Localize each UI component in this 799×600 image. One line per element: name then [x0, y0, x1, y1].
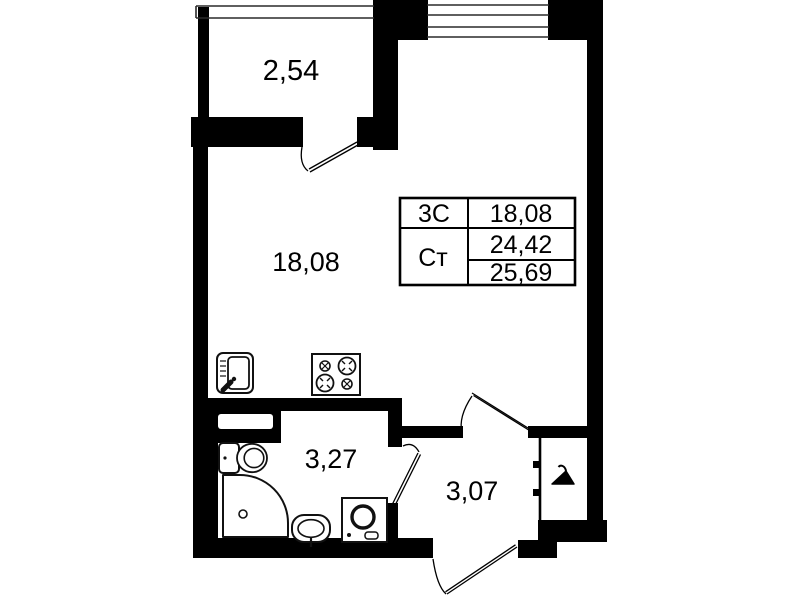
wall-bathroom-right-upper [388, 398, 402, 447]
kitchen-sink-icon [217, 353, 253, 393]
entry-door [433, 545, 517, 594]
wall-hall-top-left [388, 426, 463, 438]
floor-plan: 3С 18,08 Ст 24,42 25,69 2,54 18,08 3,27 … [0, 0, 799, 600]
wall-wardrobe-bottom [538, 520, 607, 542]
balcony-door-arc [301, 147, 308, 171]
living-room-window [427, 5, 549, 37]
washing-machine-icon [342, 498, 387, 542]
table-cell-type-2: Ст [418, 244, 448, 272]
table-cell-value-1: 18,08 [490, 200, 553, 228]
wall-left-main [193, 117, 208, 398]
room-label-bathroom: 3,27 [305, 444, 358, 474]
wall-bottom-step [518, 540, 557, 558]
wall-right [587, 40, 603, 542]
wall-balcony-right-column [373, 0, 398, 150]
table-cell-value-3: 25,69 [490, 259, 553, 287]
windows [196, 5, 549, 37]
vent-niche [218, 414, 273, 429]
bathroom-door [392, 444, 421, 506]
wall-balcony-left [198, 7, 209, 117]
toilet-icon [219, 443, 267, 473]
room-label-hallway: 3,07 [446, 476, 499, 506]
info-table: 3С 18,08 Ст 24,42 25,69 [400, 198, 575, 287]
wall-top-left-of-window [398, 0, 428, 40]
entry-door-arc [433, 559, 446, 594]
room-label-living-room: 18,08 [272, 247, 340, 277]
table-cell-type-1: 3С [418, 200, 450, 228]
balcony-window [196, 6, 374, 18]
wardrobe-hinge-dot [533, 461, 541, 468]
living-room-door [461, 393, 529, 433]
fixtures [217, 353, 387, 547]
wall-hall-top-right [528, 426, 588, 438]
table-cell-value-2: 24,42 [490, 231, 553, 259]
wall-top-right-of-window [548, 0, 603, 40]
bathroom-door-arc [403, 444, 419, 452]
room-label-balcony: 2,54 [263, 55, 319, 87]
shower-icon [223, 475, 288, 537]
wardrobe-hinge-dot [533, 489, 541, 496]
hanger-icon [552, 466, 574, 484]
wardrobe [533, 437, 574, 520]
stove-icon [312, 354, 360, 395]
balcony-door [301, 142, 358, 172]
